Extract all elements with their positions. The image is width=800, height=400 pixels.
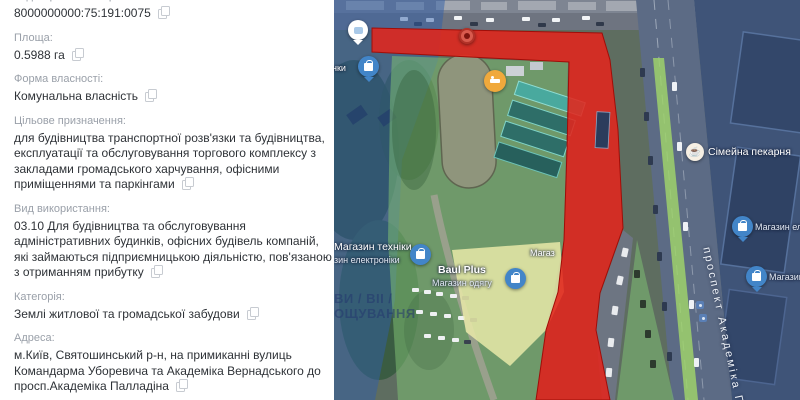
- copy-icon[interactable]: [158, 6, 169, 18]
- field-cadastral-number: Кадастровий номер: 8000000000:75:191:007…: [14, 0, 334, 22]
- field-label: Форма власності:: [14, 72, 334, 87]
- field-label: Кадастровий номер:: [14, 0, 334, 4]
- field-purpose: Цільове призначення: для будівництва тра…: [14, 114, 334, 193]
- hotel-marker-icon[interactable]: [484, 70, 506, 92]
- copy-icon[interactable]: [151, 265, 162, 277]
- shop-pin-icon[interactable]: [358, 56, 379, 77]
- copy-icon[interactable]: [72, 48, 83, 60]
- map-view[interactable]: ☕ нки Магазин техніки зин електроніки ВИ…: [334, 0, 800, 400]
- shop-tech-label: Магазин техніки: [334, 241, 412, 253]
- baul-plus-sublabel: Магазин одягу: [432, 278, 492, 288]
- shop-right1-label: Магазин еле: [755, 222, 800, 232]
- place-marker-red-icon[interactable]: [459, 28, 475, 44]
- copy-icon[interactable]: [247, 307, 258, 319]
- field-address: Адреса: м.Київ, Святошинський р-н, на пр…: [14, 331, 334, 395]
- field-label: Площа:: [14, 31, 334, 46]
- field-ownership: Форма власності: Комунальна власність: [14, 72, 334, 105]
- clothing-shop-pin-icon[interactable]: [505, 268, 526, 289]
- bakery-marker-icon[interactable]: ☕: [686, 143, 704, 161]
- bakery-label: Сімейна пекарня: [708, 146, 791, 158]
- field-label: Цільове призначення:: [14, 114, 334, 129]
- cadastral-number-value: 8000000000:75:191:0075: [14, 6, 151, 20]
- shop-right2-label: Магазин: [769, 272, 800, 282]
- field-label: Вид використання:: [14, 202, 334, 217]
- shop-pin-right1-icon[interactable]: [732, 216, 753, 237]
- category-value: Землі житлової та громадської забудови: [14, 307, 240, 321]
- transit-stop-icon[interactable]: [696, 301, 704, 309]
- field-label: Адреса:: [14, 331, 334, 346]
- baul-plus-label: Baul Plus: [438, 264, 486, 276]
- field-use-type: Вид використання: 03.10 Для будівництва …: [14, 202, 334, 281]
- copy-icon[interactable]: [182, 177, 193, 189]
- address-value: м.Київ, Святошинський р-н, на примиканні…: [14, 348, 334, 364]
- bus-on-road: [595, 112, 610, 149]
- cadastral-viewer: Кадастровий номер: 8000000000:75:191:007…: [0, 0, 800, 400]
- parcel-info-panel: Кадастровий номер: 8000000000:75:191:007…: [0, 0, 334, 400]
- copy-icon[interactable]: [145, 89, 156, 101]
- zone-code-label: ВИ / ВІІ /: [334, 291, 392, 306]
- ownership-value: Комунальна власність: [14, 89, 138, 103]
- clipped-label-fragment: нки: [334, 63, 346, 73]
- field-area: Площа: 0.5988 га: [14, 31, 334, 64]
- shop-pin-right2-icon[interactable]: [746, 266, 767, 287]
- map-pin-white-icon[interactable]: [348, 20, 368, 40]
- shop-mid-fragment-label: Магаз: [530, 248, 555, 258]
- use-type-value: 03.10 Для будівництва та обслуговування: [14, 219, 334, 235]
- field-category: Категорія: Землі житлової та громадської…: [14, 290, 334, 323]
- transit-stop-icon[interactable]: [699, 314, 707, 322]
- field-label: Категорія:: [14, 290, 334, 305]
- area-value: 0.5988 га: [14, 48, 65, 62]
- shop-tech-sublabel: зин електроніки: [334, 255, 400, 265]
- zone-code-label2: ОЩУВАННЯ: [334, 306, 416, 321]
- purpose-value: для будівництва транспортної розв'язки т…: [14, 131, 334, 147]
- copy-icon[interactable]: [176, 379, 187, 391]
- electronics-shop-pin-icon[interactable]: [410, 244, 431, 265]
